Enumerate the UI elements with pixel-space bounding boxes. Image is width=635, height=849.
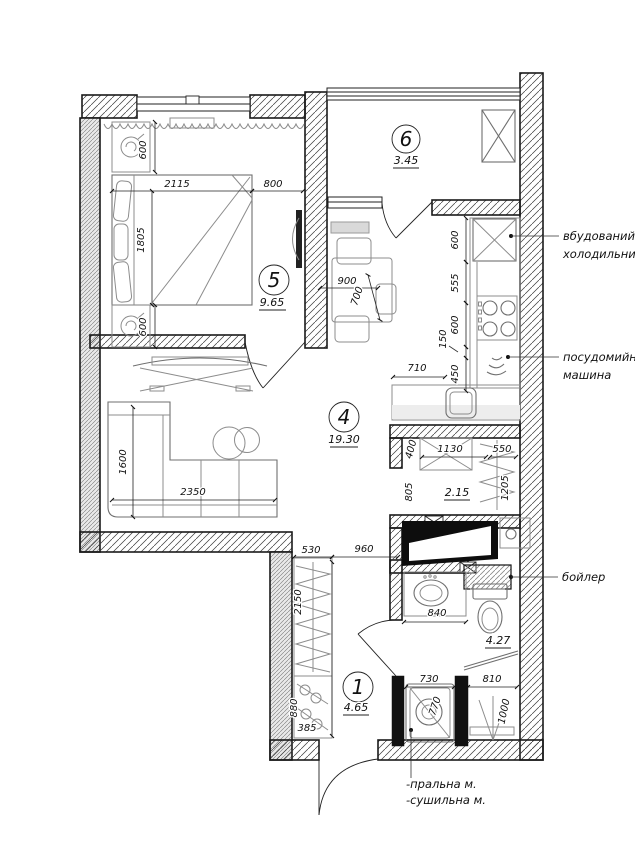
bathroom-door (358, 620, 396, 676)
room-area: 4.65 (344, 701, 369, 714)
room-tag-hallway: 1 4.65 (343, 672, 373, 715)
balcony-door-window (328, 197, 382, 208)
dim-label: 900 (337, 276, 356, 287)
room-area: 9.65 (260, 296, 285, 309)
dim-vanity: 840 (404, 608, 466, 622)
boiler-label: бойлер (562, 570, 605, 584)
dim-label: 880 (289, 698, 300, 717)
dim-label: 550 (492, 444, 511, 455)
room-area: 2.15 (445, 486, 470, 499)
room-tag-bathroom: 4.27 (485, 634, 511, 648)
dim-label: 730 (419, 674, 438, 685)
dim-label: 150 (438, 329, 449, 348)
coffee-tables (213, 427, 260, 459)
window-shelf (331, 222, 369, 233)
dim-label: 600 (450, 315, 461, 334)
dim-label: 600 (138, 317, 149, 336)
room-balcony (482, 110, 515, 162)
washer-label: -пральна м. (406, 777, 477, 791)
dim-label: 400 (404, 439, 420, 460)
dim-label: 1805 (136, 227, 147, 252)
dim-label: 2350 (180, 487, 205, 498)
room-area: 19.30 (328, 433, 360, 446)
balcony-door (382, 202, 432, 238)
bedroom-window (137, 96, 250, 111)
dim-label: 600 (450, 230, 461, 249)
dim-label: 810 (482, 674, 501, 685)
dim-label: 710 (407, 363, 426, 374)
dishwasher-icon (487, 357, 506, 375)
tv-bedroom (293, 210, 303, 268)
dim-label: 530 (301, 545, 320, 556)
dim-bed-width: 2115 (112, 179, 252, 191)
dim-label: 700 (349, 285, 365, 307)
dim-sofa: 1600 2350 (112, 407, 275, 517)
dim-label: 840 (427, 608, 446, 619)
dim-kitchen-chain: 600 555 600 150 450 (438, 218, 466, 391)
boiler (464, 565, 511, 589)
dishwasher-label-line2: машина (563, 368, 611, 382)
windows (137, 88, 520, 208)
dim-label: 1000 (497, 698, 513, 725)
room-tag-storage: 2.15 (444, 486, 470, 500)
room-tag-living: 4 19.30 (328, 402, 360, 447)
dim-label: 1130 (437, 444, 462, 455)
dim-label: 800 (263, 179, 282, 190)
dim-table: 900 700 (320, 275, 380, 320)
entrance-door (319, 759, 378, 815)
room-number: 6 (400, 127, 413, 151)
dim-label: 805 (404, 482, 415, 501)
balcony-glazing (327, 88, 520, 100)
dim-bed-to-wall: 800 (252, 179, 303, 191)
floor-plan-page: 600 2115 800 1805 600 600 555 600 150 (0, 0, 635, 849)
dim-bed-length: 1805 (136, 191, 152, 305)
dim-kitchen-return: 710 (393, 363, 445, 377)
dim-label: 1205 (500, 475, 511, 500)
fridge-label-line2: холодильник (562, 247, 635, 261)
dim-label: 555 (450, 273, 461, 292)
laundry-wall-stub (392, 676, 404, 746)
bed (112, 175, 252, 305)
room-bedroom (104, 118, 304, 347)
fridge (473, 219, 516, 261)
dim-label: 1600 (118, 449, 129, 474)
room-number: 4 (338, 405, 351, 429)
room-area: 3.45 (394, 154, 419, 167)
dim-label: 385 (297, 723, 316, 734)
room-number: 5 (268, 268, 281, 292)
room-area: 4.27 (486, 634, 511, 647)
dim-label: 960 (354, 544, 373, 555)
room-tag-bedroom: 5 9.65 (259, 265, 289, 310)
cooktop (477, 296, 517, 340)
dim-label: 450 (450, 364, 461, 383)
dishwasher-label-line1: посудомийна (563, 350, 635, 364)
shower-unit (402, 521, 498, 566)
tv-console (133, 357, 267, 391)
dim-label: 2115 (164, 179, 189, 190)
bedroom-door (245, 342, 305, 388)
dim-label: 2150 (293, 589, 304, 614)
toilet (473, 584, 507, 633)
room-tag-balcony: 6 3.45 (392, 125, 420, 168)
bed-throw (152, 175, 252, 305)
dim-bedroom-nightstand-top: 600 (138, 122, 155, 172)
floor-plan-drawing: 600 2115 800 1805 600 600 555 600 150 (0, 0, 635, 849)
dryer-label: -сушильна м. (406, 793, 486, 807)
dim-label: 600 (138, 140, 149, 159)
shower-tray (464, 651, 518, 740)
room-number: 1 (352, 675, 365, 699)
fridge-label-line1: вбудований (563, 229, 635, 243)
laundry-partition (455, 676, 468, 746)
